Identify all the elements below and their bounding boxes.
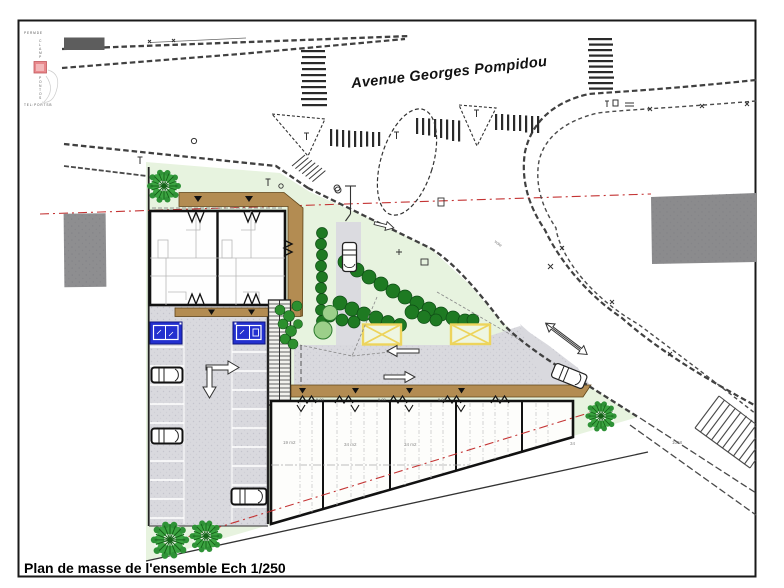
svg-text:19 m2: 19 m2: [283, 440, 296, 445]
svg-text:T E L : P O R T S B: T E L : P O R T S B: [24, 103, 51, 107]
svg-text:5,00: 5,00: [438, 397, 447, 402]
svg-text:5,00: 5,00: [316, 397, 325, 402]
svg-text:34 m2: 34 m2: [404, 442, 417, 447]
svg-text:34 m2: 34 m2: [344, 442, 357, 447]
svg-text:1018: 1018: [672, 440, 683, 445]
svg-text:5,00: 5,00: [378, 397, 387, 402]
svg-text:5,0: 5,0: [498, 397, 504, 402]
svg-text:P E R M D E: P E R M D E: [24, 31, 42, 35]
svg-text:Plan de masse de l'ensemble Ec: Plan de masse de l'ensemble Ech 1/250: [24, 560, 286, 576]
svg-text:34: 34: [570, 441, 576, 446]
